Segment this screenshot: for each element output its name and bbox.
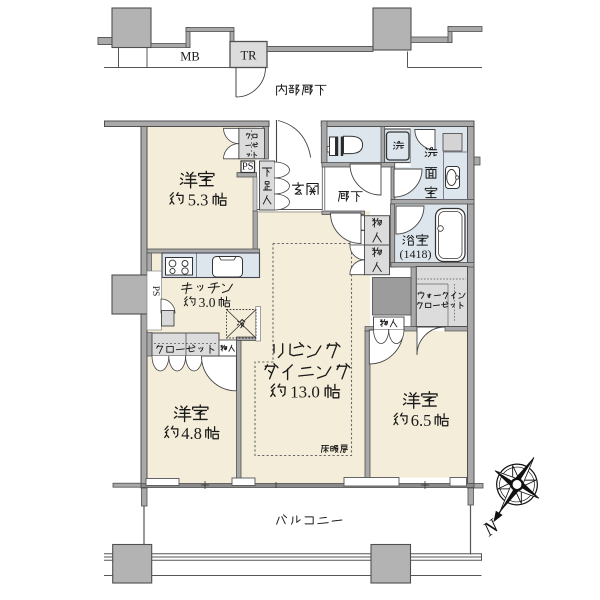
svg-text:PS: PS — [150, 286, 160, 297]
svg-text:5.3: 5.3 — [188, 191, 209, 210]
svg-text:3.0: 3.0 — [199, 295, 216, 310]
svg-text:TR: TR — [241, 49, 258, 63]
svg-text:6.5: 6.5 — [411, 411, 432, 430]
svg-text:N: N — [478, 514, 504, 541]
svg-text:(1418): (1418) — [400, 247, 432, 261]
svg-text:13.0: 13.0 — [290, 383, 320, 402]
svg-text:PS: PS — [242, 162, 254, 173]
svg-text:MB: MB — [180, 50, 199, 64]
svg-text:4.8: 4.8 — [181, 424, 202, 443]
